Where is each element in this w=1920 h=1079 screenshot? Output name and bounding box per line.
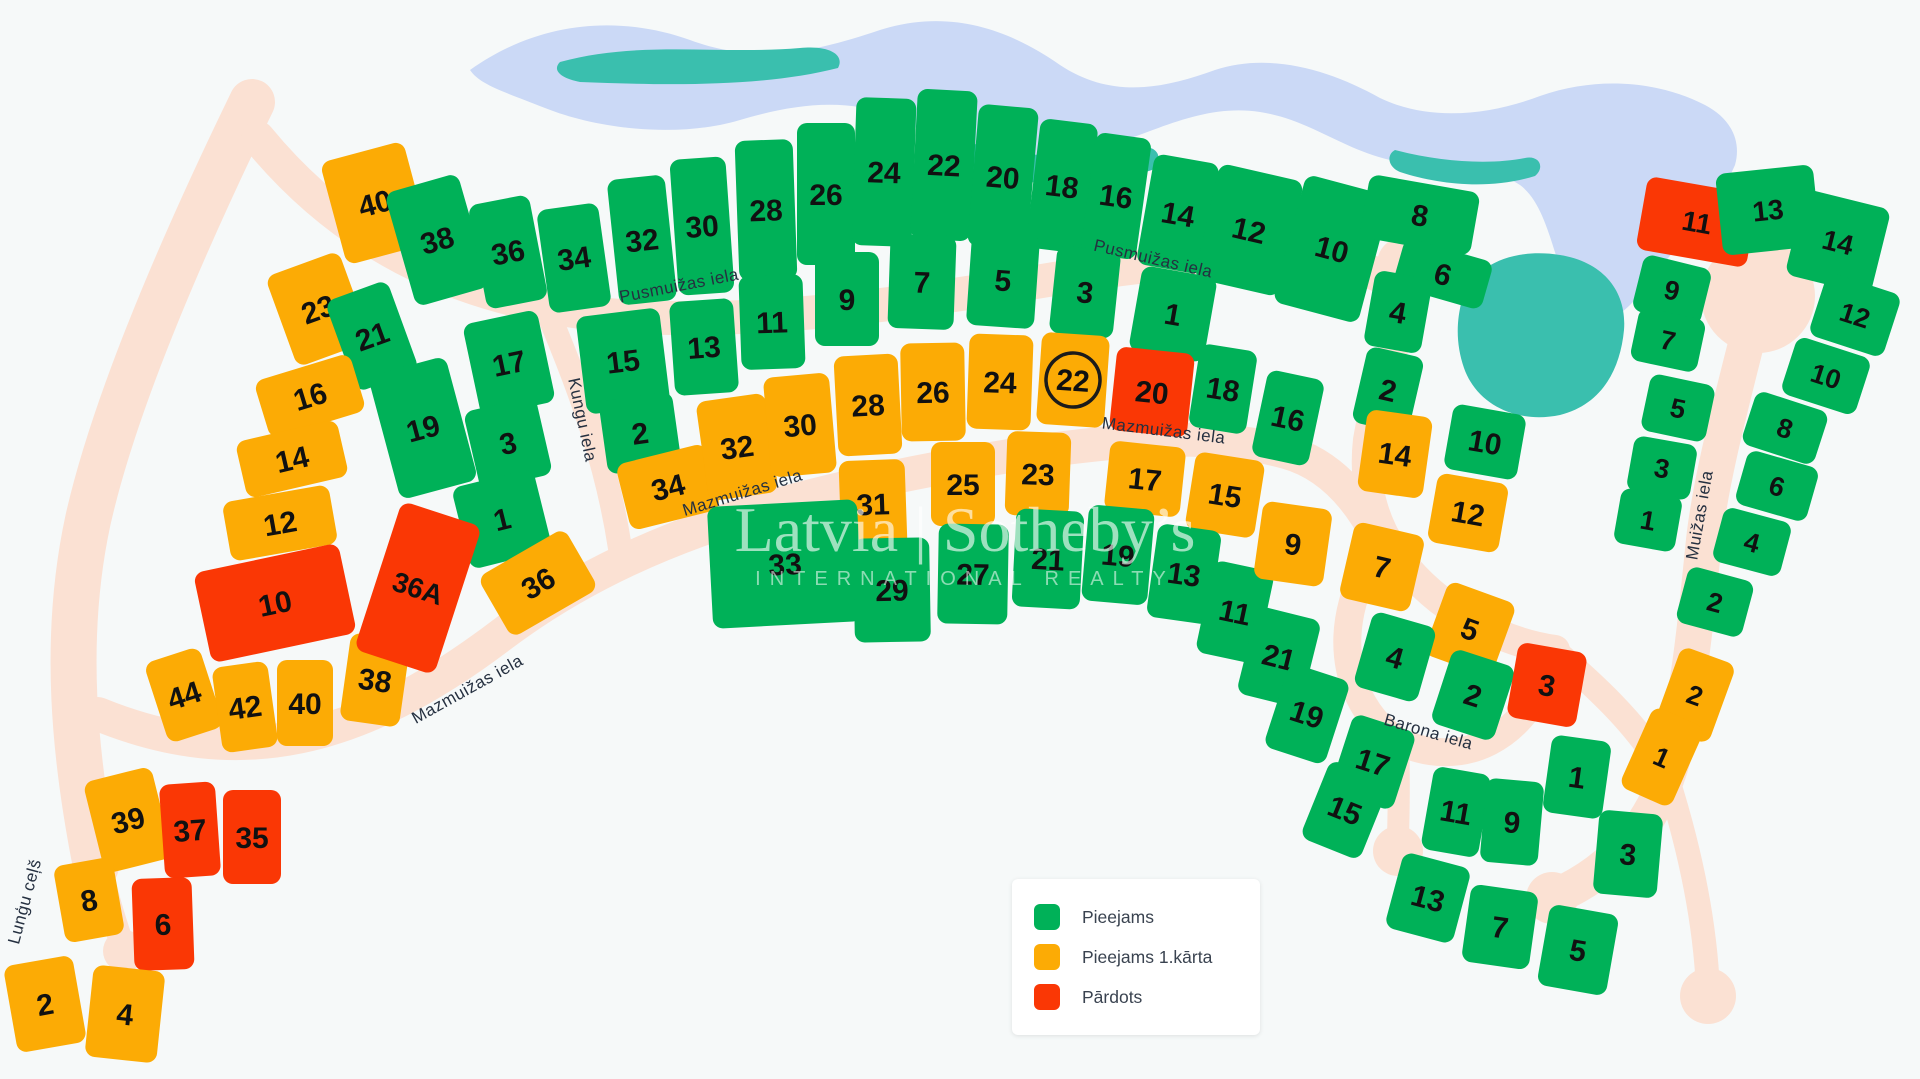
lot-number: 28 (851, 389, 886, 424)
lot-number: 13 (1165, 557, 1203, 594)
lot-number: 11 (1680, 205, 1715, 241)
lot-number: 12 (261, 505, 300, 543)
sold-color-swatch (1034, 984, 1060, 1010)
lot-number: 6 (154, 909, 172, 943)
lot-number: 28 (749, 194, 784, 228)
lot-21[interactable]: 21 (1011, 508, 1084, 609)
lot-22[interactable]: 22 (910, 89, 978, 242)
lot-number: 42 (226, 690, 264, 727)
lot-13[interactable]: 13 (669, 298, 739, 396)
lot-12[interactable]: 12 (1426, 472, 1509, 553)
lot-number: 11 (756, 306, 789, 340)
lot-number: 3 (1075, 276, 1095, 311)
lot-number: 15 (605, 344, 642, 381)
lot-number: 5 (993, 264, 1012, 298)
lot-26[interactable]: 26 (900, 342, 966, 441)
lot-17[interactable]: 17 (1104, 440, 1187, 518)
lot-number: 23 (1021, 458, 1056, 492)
lot-number: 34 (555, 241, 593, 278)
lot-number: 26 (809, 179, 842, 212)
lot-number: 9 (1502, 806, 1522, 840)
lot-number: 20 (985, 160, 1021, 196)
lot-number: 14 (1376, 437, 1414, 474)
legend-label: Pieejams 1.kārta (1082, 947, 1212, 968)
lot-23[interactable]: 23 (1005, 431, 1072, 517)
lot-number: 3 (1618, 838, 1638, 872)
cul-de-sac-bulb (1680, 968, 1736, 1024)
lot-number: 38 (356, 663, 394, 700)
lot-40[interactable]: 40 (277, 660, 333, 746)
lot-27[interactable]: 27 (937, 523, 1009, 624)
lot-6[interactable]: 6 (131, 877, 194, 971)
lot-number: 19 (1100, 538, 1136, 574)
lot-number: 25 (946, 469, 979, 502)
available-color-swatch (1034, 904, 1060, 930)
lot-28[interactable]: 28 (833, 353, 902, 456)
lot-3[interactable]: 3 (1506, 641, 1588, 728)
lot-9[interactable]: 9 (815, 252, 879, 346)
lot-7[interactable]: 7 (887, 234, 956, 330)
lot-3[interactable]: 3 (1049, 245, 1122, 339)
plot-map-stage: 4038363432302826242220181614121086232116… (0, 0, 1920, 1079)
lot-number: 27 (956, 559, 990, 593)
lot-42[interactable]: 42 (211, 661, 278, 754)
lot-19[interactable]: 19 (1081, 504, 1155, 605)
legend-item-available: Pieejams (1034, 904, 1260, 930)
legend-item-sold: Pārdots (1034, 984, 1260, 1010)
lot-number: 17 (490, 345, 530, 384)
lot-33[interactable]: 33 (707, 499, 863, 629)
lot-number: 24 (867, 156, 902, 190)
lot-28[interactable]: 28 (735, 139, 798, 281)
lot-number: 37 (172, 814, 208, 849)
lot-number: 18 (1043, 169, 1080, 206)
legend-item-phase1: Pieejams 1.kārta (1034, 944, 1260, 970)
lot-9[interactable]: 9 (1253, 501, 1333, 588)
lot-14[interactable]: 14 (1357, 409, 1434, 499)
lot-number: 35 (235, 822, 268, 855)
lot-number: 20 (1134, 375, 1171, 411)
lot-number: 17 (1127, 462, 1164, 498)
lot-26[interactable]: 26 (797, 123, 855, 265)
lot-number: 14 (1158, 196, 1197, 234)
lot-number: 10 (1465, 424, 1504, 462)
lot-number: 11 (1216, 594, 1254, 633)
lot-24[interactable]: 24 (966, 333, 1033, 430)
lot-number: 30 (782, 408, 818, 444)
legend-label: Pārdots (1082, 987, 1142, 1008)
lot-25[interactable]: 25 (931, 442, 995, 526)
lot-1[interactable]: 1 (1613, 487, 1684, 553)
lot-37[interactable]: 37 (159, 781, 221, 879)
lot-number: 22 (1055, 364, 1091, 399)
lot-number: 30 (684, 210, 720, 245)
lot-15[interactable]: 15 (1184, 451, 1265, 539)
lot-number: 9 (839, 284, 856, 317)
lot-number: 32 (718, 430, 756, 467)
lot-number: 12 (1448, 495, 1487, 533)
lot-number: 15 (1206, 477, 1244, 515)
lot-4[interactable]: 4 (84, 964, 165, 1063)
lot-number: 32 (624, 223, 661, 259)
lot-5[interactable]: 5 (966, 231, 1040, 330)
lot-number: 31 (856, 488, 891, 522)
lot-3[interactable]: 3 (1592, 809, 1663, 898)
lot-number: 40 (288, 688, 321, 721)
legend-label: Pieejams (1082, 907, 1154, 928)
lot-30[interactable]: 30 (763, 372, 837, 477)
lot-9[interactable]: 9 (1479, 778, 1544, 867)
lot-5[interactable]: 5 (1536, 904, 1619, 997)
lot-number: 7 (913, 267, 931, 301)
lot-number: 16 (1097, 179, 1135, 216)
lot-1[interactable]: 1 (1542, 734, 1612, 820)
legend: Pieejams Pieejams 1.kārta Pārdots (1012, 879, 1260, 1035)
lot-number: 26 (916, 377, 950, 411)
lot-number: 13 (686, 331, 722, 366)
land-plot-map: 4038363432302826242220181614121086232116… (0, 0, 1920, 1079)
lot-number: 36 (489, 234, 528, 273)
lot-number: 21 (1030, 543, 1065, 578)
lot-number: 16 (1268, 400, 1308, 439)
lot-number: 29 (875, 575, 909, 609)
lot-29[interactable]: 29 (853, 537, 931, 642)
lot-number: 24 (983, 366, 1018, 400)
lot-22[interactable]: 22 (1036, 332, 1110, 429)
lot-number: 10 (256, 585, 296, 624)
lot-number: 13 (1751, 194, 1785, 228)
lot-24[interactable]: 24 (851, 97, 916, 247)
lot-35[interactable]: 35 (223, 790, 281, 884)
lot-10[interactable]: 10 (1443, 403, 1527, 481)
phase1-color-swatch (1034, 944, 1060, 970)
lot-7[interactable]: 7 (1461, 884, 1539, 971)
lot-11[interactable]: 11 (738, 274, 805, 370)
lot-number: 18 (1204, 371, 1242, 409)
lot-number: 33 (768, 548, 803, 583)
lot-number: 22 (926, 149, 961, 184)
lot-number: 11 (1437, 794, 1474, 832)
